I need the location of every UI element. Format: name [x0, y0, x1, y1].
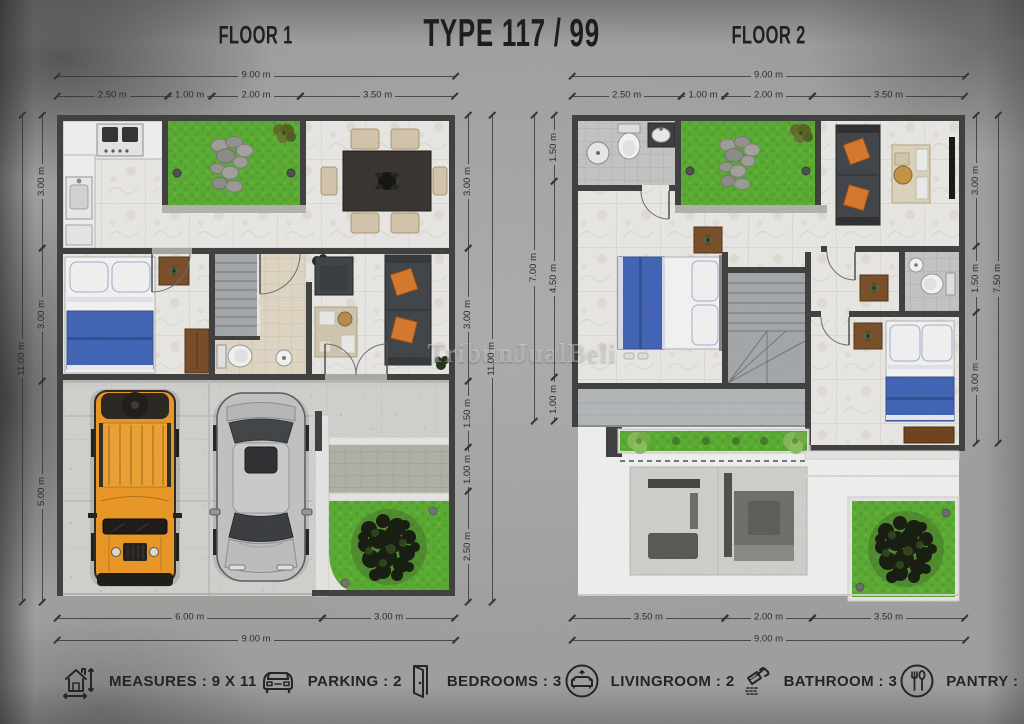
legend-item-bathroom: BATHROOM : 3	[735, 661, 898, 701]
legend-label: PANTRY : 1	[946, 673, 1024, 690]
pillow	[692, 261, 718, 301]
legend-label: PARKING : 2	[308, 673, 402, 690]
floorplan-poster: TYPE 117 / 99 FLOOR 1 FLOOR 2	[0, 0, 1024, 724]
floor1-label: FLOOR 1	[57, 22, 455, 49]
floor2-dim-right-total: 7.50 m	[992, 115, 1004, 443]
sink-icon	[66, 177, 92, 219]
floor1-dim-left-segments: 3.00 m 3.00 m 5.00 m	[36, 115, 48, 602]
floor1-dim-left-total: 11.00 m	[16, 115, 28, 602]
floor2-dim-right-segments: 3.00 m 1.50 m 3.00 m	[970, 115, 982, 443]
garden-tree	[868, 511, 944, 587]
floor2-dim-top-segments: 2.50 m 1.00 m 2.00 m 3.50 m	[572, 90, 965, 102]
sofa	[836, 125, 880, 225]
sofa-icon	[562, 661, 602, 701]
garden-light-icon	[287, 169, 295, 177]
garden-courtyard	[162, 121, 306, 213]
legend-item-livingroom: LIVINGROOM : 2	[562, 661, 735, 701]
watermark: TribunJualBeli	[372, 338, 672, 369]
sink-icon	[648, 123, 675, 147]
door-icon	[402, 661, 438, 701]
car-icon	[257, 661, 299, 701]
tv-icon	[949, 137, 955, 199]
side-walkway-garden	[315, 411, 449, 596]
floor2-dim-top-total: 9.00 m	[572, 70, 965, 82]
carport-below-view	[630, 467, 807, 575]
floor1-dim-right-segments: 3.00 m 3.00 m 1.50 m 1.00 m 2.50 m	[462, 115, 474, 602]
sedan-car	[210, 393, 312, 581]
dresser	[904, 427, 954, 443]
work-desk	[892, 145, 930, 203]
toilet-icon	[217, 345, 252, 368]
legend-item-pantry: PANTRY : 1	[897, 661, 1024, 701]
legend-item-parking: PARKING : 2	[257, 661, 402, 701]
floor2-dim-bottom-total: 9.00 m	[572, 634, 965, 646]
legend-label: BATHROOM : 3	[784, 673, 898, 690]
floor2-dim-left-segments: 1.50 m 4.50 m 1.00 m	[548, 115, 560, 421]
floor1-dim-right-total: 11.00 m	[486, 115, 498, 602]
legend-item-bedrooms: BEDROOMS : 3	[402, 661, 562, 701]
legend-label: LIVINGROOM : 2	[611, 673, 735, 690]
garden-light-icon	[173, 169, 181, 177]
roof-garden	[848, 497, 959, 601]
floor1-dim-top-segments: 2.50 m 1.00 m 2.00 m 3.50 m	[57, 90, 455, 102]
house-measure-icon	[60, 661, 100, 701]
garden-light-icon	[341, 579, 349, 587]
garden-light-icon	[942, 509, 950, 517]
toilet-icon	[921, 273, 955, 295]
suv-car	[88, 389, 182, 587]
cutlery-icon	[897, 661, 937, 701]
pillow	[70, 262, 108, 292]
floor1-dim-top-total: 9.00 m	[57, 70, 455, 82]
pillow	[112, 262, 150, 292]
pillow	[890, 325, 920, 361]
garden-light-icon	[802, 167, 810, 175]
toilet-icon	[618, 124, 640, 159]
legend-bar: MEASURES : 9 X 11 PARKING : 2 BEDROOMS :	[60, 650, 1006, 712]
pillow	[922, 325, 952, 361]
garden-tree	[351, 509, 427, 585]
bathroom-3	[899, 252, 959, 317]
garden-courtyard-2	[675, 121, 827, 213]
floor2-dim-left-total: 7.00 m	[528, 115, 540, 421]
garden-light-icon	[686, 167, 694, 175]
floor2-dim-bottom-segments: 3.50 m 2.00 m 3.50 m	[572, 612, 965, 624]
paver-path	[329, 445, 449, 493]
coffee-table-set	[315, 307, 357, 357]
garden-light-icon	[429, 507, 437, 515]
legend-item-measures: MEASURES : 9 X 11	[60, 661, 257, 701]
legend-label: MEASURES : 9 X 11	[109, 673, 257, 690]
stove-icon	[97, 124, 143, 156]
garden-light-icon	[856, 583, 864, 591]
floor1-dim-bottom-total: 9.00 m	[57, 634, 455, 646]
floor2-label: FLOOR 2	[572, 22, 965, 49]
legend-label: BEDROOMS : 3	[447, 673, 562, 690]
pillow	[692, 305, 718, 345]
floor1-dim-bottom-segments: 6.00 m 3.00 m	[57, 612, 455, 624]
shower-icon	[735, 661, 775, 701]
